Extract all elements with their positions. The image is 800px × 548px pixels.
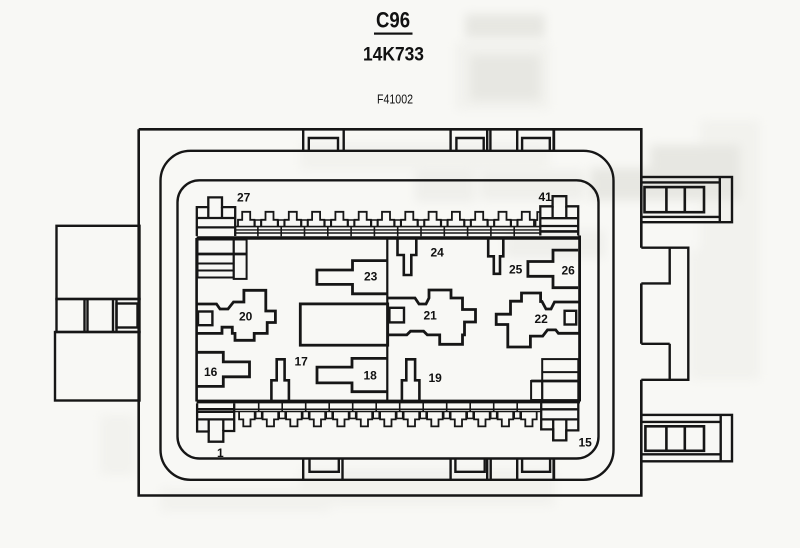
svg-text:41: 41 xyxy=(539,190,553,204)
svg-text:23: 23 xyxy=(364,270,378,284)
svg-text:20: 20 xyxy=(239,310,253,324)
svg-text:22: 22 xyxy=(535,312,549,326)
svg-text:16: 16 xyxy=(204,365,218,379)
svg-text:19: 19 xyxy=(429,371,443,385)
svg-text:1: 1 xyxy=(217,446,224,460)
svg-text:17: 17 xyxy=(295,355,309,369)
svg-text:F41002: F41002 xyxy=(377,92,413,107)
svg-text:26: 26 xyxy=(562,264,576,278)
svg-text:C96: C96 xyxy=(376,8,410,33)
svg-text:24: 24 xyxy=(431,246,445,260)
svg-text:14K733: 14K733 xyxy=(363,45,424,66)
svg-text:18: 18 xyxy=(364,369,378,383)
svg-text:27: 27 xyxy=(237,191,251,205)
svg-text:25: 25 xyxy=(509,263,523,277)
svg-text:21: 21 xyxy=(424,309,438,323)
svg-text:15: 15 xyxy=(579,436,593,450)
